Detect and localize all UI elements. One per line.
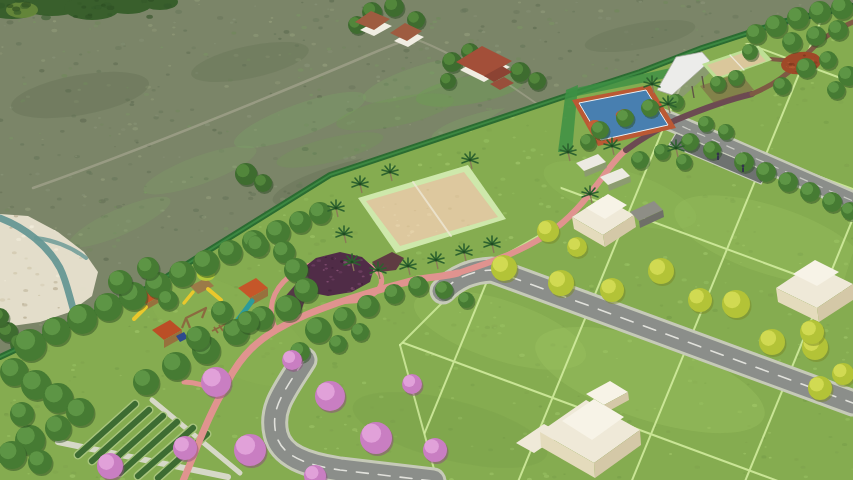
scene-canvas xyxy=(0,0,853,480)
masterplan-aerial-render xyxy=(0,0,853,480)
